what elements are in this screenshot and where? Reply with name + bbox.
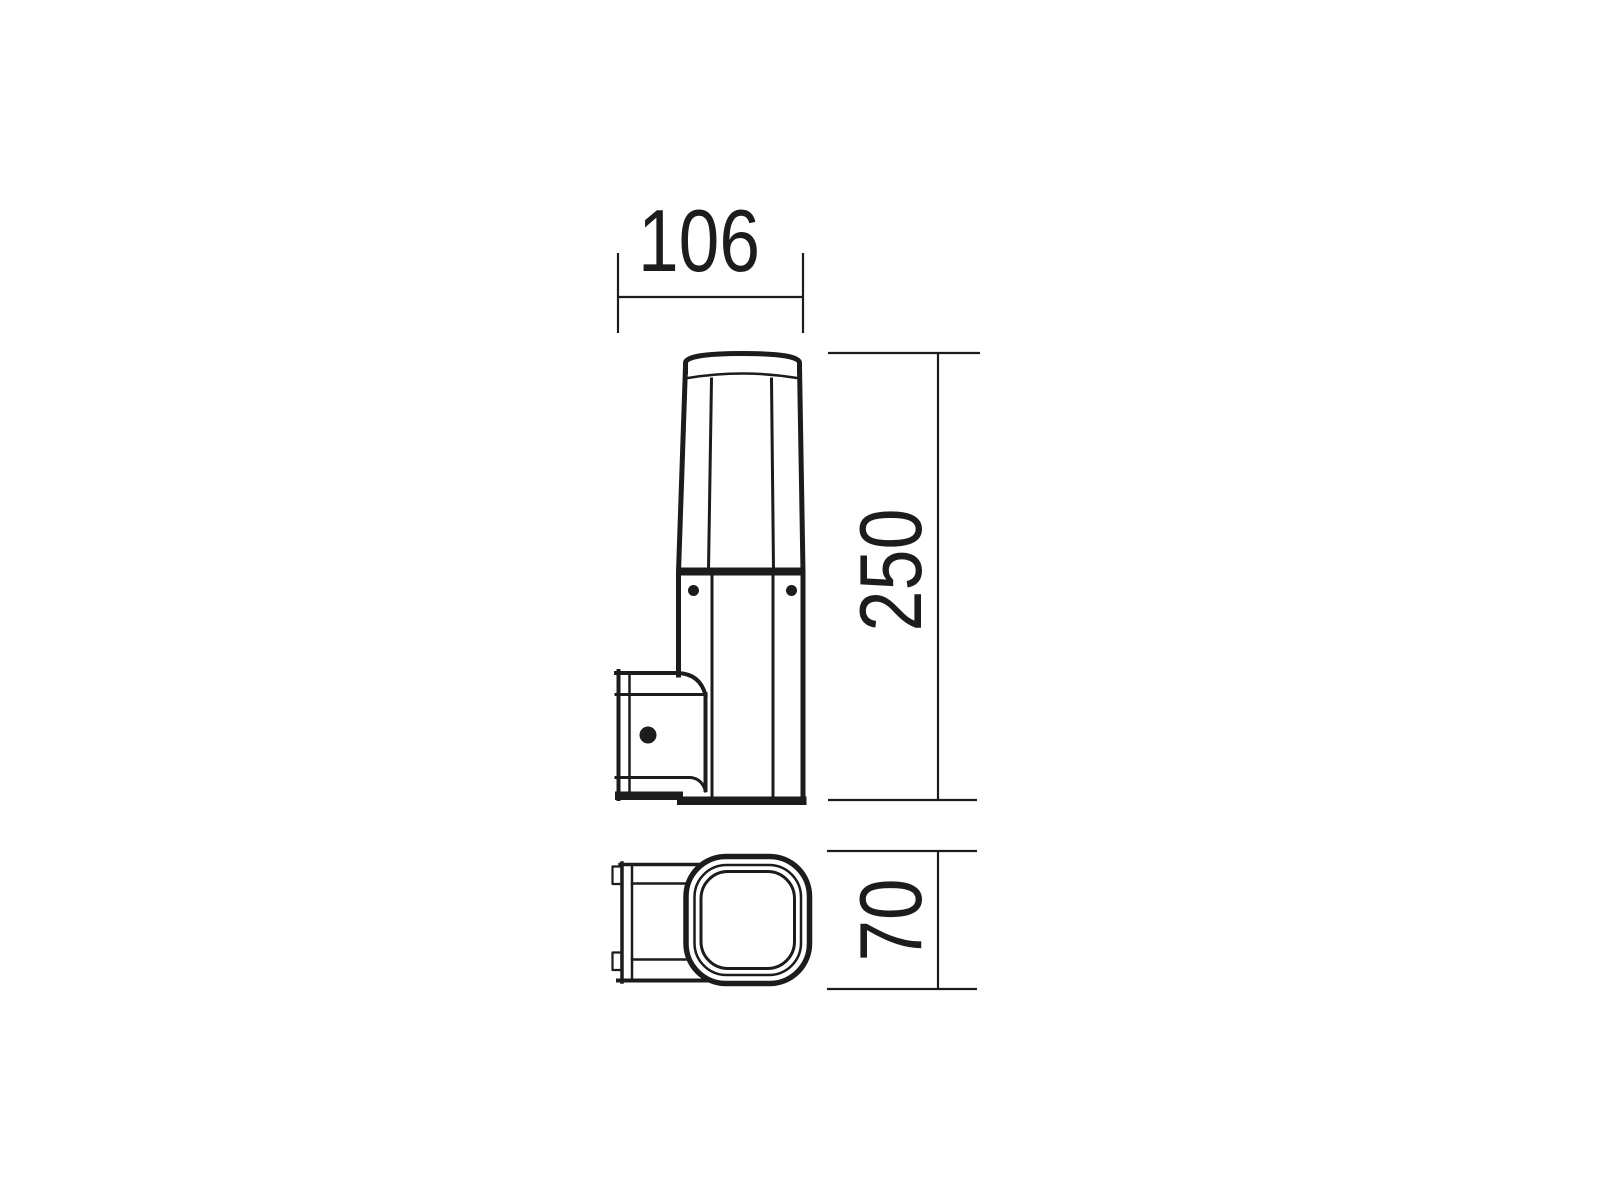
mount-tab-bottom xyxy=(613,953,622,971)
dimension-width: 106 xyxy=(618,191,803,333)
width-dimension-label: 106 xyxy=(638,191,760,290)
dimension-depth: 70 xyxy=(827,851,977,989)
section-outer-ring xyxy=(686,857,810,984)
cap-top-arc xyxy=(686,354,800,373)
dimension-height: 250 xyxy=(828,353,980,800)
body-outline-left xyxy=(679,366,686,675)
diffuser xyxy=(686,354,800,571)
top-view xyxy=(613,857,810,984)
screw-dot-right xyxy=(786,585,797,596)
technical-drawing-page: 106 250 70 xyxy=(0,0,1600,1200)
mount-tab-top xyxy=(613,867,622,885)
bracket-screw-dot xyxy=(640,727,657,744)
body-column xyxy=(677,366,807,805)
diffuser-inner-line-right xyxy=(772,379,774,570)
cap-rim-line xyxy=(688,374,797,379)
base-band xyxy=(677,797,807,806)
lamp-cross-section xyxy=(686,857,810,984)
diffuser-inner-line-left xyxy=(709,379,712,570)
divider-band xyxy=(677,568,804,576)
height-dimension-label: 250 xyxy=(841,509,940,632)
bracket-bottom-band xyxy=(615,792,683,801)
wall-luminaire-dimension-drawing: 106 250 70 xyxy=(0,0,1600,1200)
wall-bracket xyxy=(615,671,706,800)
body-outline-right xyxy=(800,366,804,799)
screw-dot-left xyxy=(688,585,699,596)
side-view xyxy=(615,354,807,806)
wall-plate-top-view xyxy=(613,863,633,982)
depth-dimension-label: 70 xyxy=(841,879,940,962)
